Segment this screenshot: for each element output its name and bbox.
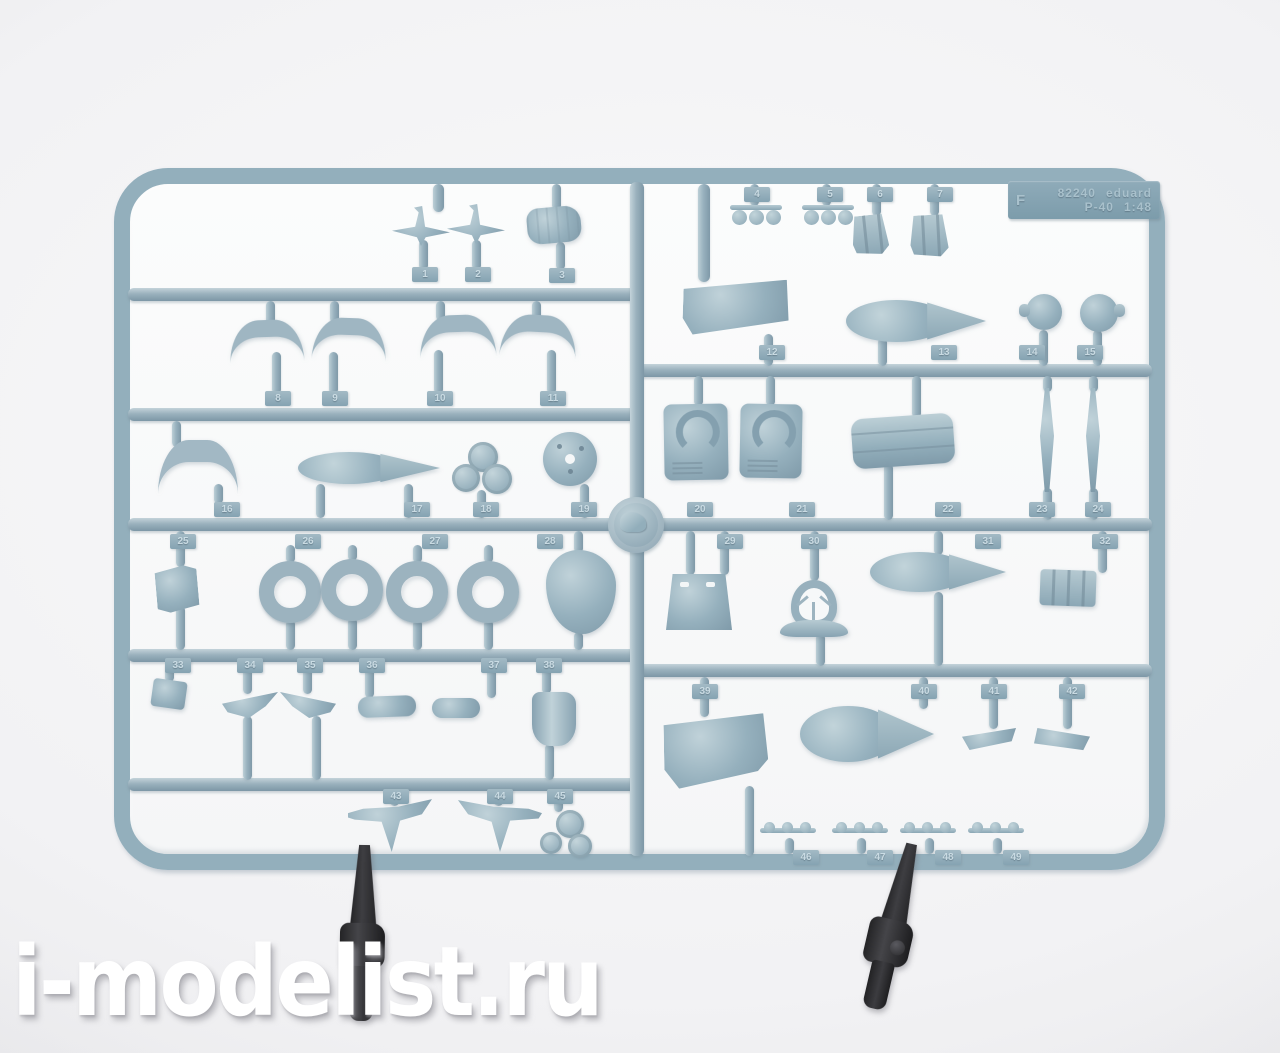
sprue-runner-stem — [413, 620, 422, 650]
sprue-letter: F — [1016, 192, 1025, 209]
sprue-part-45 — [540, 810, 596, 862]
part-number-tag-13: 13 — [931, 345, 957, 360]
part-number-tag-21: 21 — [789, 502, 815, 517]
part-number-tag-18: 18 — [473, 502, 499, 517]
part-number-tag-1: 1 — [412, 267, 438, 282]
part-knob — [732, 210, 747, 225]
part-number-tag-28: 28 — [537, 534, 563, 549]
plate-line-1: 82240eduard — [1031, 186, 1152, 200]
part-number-tag-27: 27 — [422, 534, 448, 549]
sprue-part-15 — [1080, 294, 1118, 332]
sprue-runner-stem — [286, 620, 295, 650]
part-number-tag-17: 17 — [404, 502, 430, 517]
part-number-tag-31: 31 — [975, 534, 1001, 549]
part-number-tag-20: 20 — [687, 502, 713, 517]
sprue-runner-stem — [934, 592, 943, 666]
part-knob — [782, 822, 793, 833]
part-number-tag-48: 48 — [935, 850, 961, 865]
part-slot — [706, 582, 715, 587]
sprue-part-5 — [802, 203, 854, 225]
plate-line-2: P-401:48 — [1031, 200, 1152, 214]
part-knob — [972, 822, 983, 833]
sprue-runner-stem — [694, 376, 703, 406]
sprue-rail-right-1 — [638, 364, 1152, 377]
sprue-part-14 — [1026, 294, 1062, 330]
part-number-tag-15: 15 — [1077, 345, 1103, 360]
sprue-part-26-tire — [259, 561, 321, 623]
small-disc — [568, 834, 592, 858]
part-knob — [990, 822, 1001, 833]
spoke — [812, 602, 815, 620]
sprue-part-32 — [1039, 569, 1096, 607]
part-knob — [872, 822, 883, 833]
center-hole — [565, 454, 575, 464]
sprue-info-plate: F 82240eduard P-401:48 — [1008, 181, 1160, 219]
sprue-part-20-bulkhead — [663, 403, 728, 480]
clip-tail — [862, 959, 895, 1011]
sprue-runner-stem — [348, 618, 357, 650]
sprue-part-31-drop-tank — [870, 552, 1006, 592]
sprue-part-37 — [432, 698, 480, 718]
aircraft-name: P-40 — [1085, 200, 1114, 214]
sprue-part-3 — [526, 205, 583, 246]
part-number-tag-33: 33 — [165, 658, 191, 673]
sprue-runner-stem — [878, 338, 887, 366]
part-number-tag-4: 4 — [744, 187, 770, 202]
part-number-tag-46: 46 — [793, 850, 819, 865]
sprue-runner-stem — [745, 786, 754, 856]
part-number-tag-37: 37 — [481, 658, 507, 673]
watermark-text: i-modelist.ru — [12, 926, 601, 1038]
part-number-tag-10: 10 — [427, 391, 453, 406]
sprue-rail-left-1 — [128, 288, 642, 301]
part-number-tag-43: 43 — [383, 789, 409, 804]
sprue-part-38 — [532, 692, 576, 746]
part-slot — [680, 582, 689, 587]
brand-name: eduard — [1106, 186, 1152, 200]
sprue-part-49 — [968, 822, 1024, 838]
sprue-runner-stem — [545, 744, 554, 780]
pin-hole — [557, 444, 562, 449]
part-knob — [749, 210, 764, 225]
part-number-tag-30: 30 — [801, 534, 827, 549]
part-knob — [922, 822, 933, 833]
part-number-tag-11: 11 — [540, 391, 566, 406]
part-knob — [764, 822, 775, 833]
sprue-part-30-cowl-front — [786, 580, 842, 638]
part-number-tag-12: 12 — [759, 345, 785, 360]
sprue-runner-stem — [816, 634, 825, 666]
plate-text: 82240eduard P-401:48 — [1031, 186, 1152, 214]
part-number-tag-5: 5 — [817, 187, 843, 202]
part-knob — [821, 210, 836, 225]
wheel-disc — [482, 464, 512, 494]
part-number-tag-34: 34 — [237, 658, 263, 673]
sprue-part-48 — [900, 822, 956, 838]
pin-hole — [568, 469, 573, 474]
sprue-runner-stem — [316, 484, 325, 518]
part-number-tag-19: 19 — [571, 502, 597, 517]
part-number-tag-42: 42 — [1059, 684, 1085, 699]
sprue-part-33 — [150, 678, 188, 710]
part-number-tag-9: 9 — [322, 391, 348, 406]
part-knob — [838, 210, 853, 225]
sprue-runner-stem — [766, 376, 775, 406]
clip-head — [861, 915, 915, 970]
part-knob — [940, 822, 951, 833]
sprue-runner-stem — [912, 376, 921, 418]
part-number-tag-45: 45 — [547, 789, 573, 804]
part-number-tag-2: 2 — [465, 267, 491, 282]
part-knob — [836, 822, 847, 833]
part-number-tag-40: 40 — [911, 684, 937, 699]
sprue-part-18 — [452, 442, 514, 496]
part-number-tag-35: 35 — [297, 658, 323, 673]
part-number-tag-38: 38 — [536, 658, 562, 673]
part-number-tag-22: 22 — [935, 502, 961, 517]
part-number-tag-23: 23 — [1029, 502, 1055, 517]
sprue-runner-stem — [472, 240, 481, 270]
part-number-tag-24: 24 — [1085, 502, 1111, 517]
sprue-rail-left-2 — [128, 408, 642, 421]
sprue-part-46 — [760, 822, 816, 838]
part-number-tag-41: 41 — [981, 684, 1007, 699]
part-knob — [904, 822, 915, 833]
sprue-part-29 — [666, 574, 732, 630]
part-number-tag-16: 16 — [214, 502, 240, 517]
clip-jaw — [348, 845, 379, 931]
sprue-runner-stem — [484, 620, 493, 650]
sprue-runner-stem — [686, 531, 695, 575]
sprue-part-21-bulkhead — [739, 403, 802, 478]
sprue-part-19 — [543, 432, 597, 486]
sprue-part-13-fuel-tank — [846, 300, 986, 342]
sprue-part-tire — [386, 561, 448, 623]
sprue-runner-stem — [698, 184, 710, 282]
sprue-photo: 1 2 3 4 5 6 7 8 9 10 11 12 13 14 15 16 1… — [0, 0, 1280, 1053]
sprue-part-tire — [457, 561, 519, 623]
part-knob — [804, 210, 819, 225]
sprue-runner-stem — [993, 838, 1002, 854]
sprue-runner-stem — [433, 184, 444, 212]
sprue-runner-stem — [884, 464, 893, 520]
sprue-runner-stem — [556, 242, 565, 270]
sprue-part-7 — [909, 214, 949, 258]
part-number-tag-3: 3 — [549, 268, 575, 283]
part-knob — [800, 822, 811, 833]
sprue-part-47 — [832, 822, 888, 838]
sprue-part-4 — [730, 203, 782, 225]
scale-text: 1:48 — [1124, 200, 1152, 214]
part-number-tag-44: 44 — [487, 789, 513, 804]
part-number-tag-36: 36 — [359, 658, 385, 673]
part-number-tag-39: 39 — [692, 684, 718, 699]
sprue-part-36 — [358, 695, 417, 718]
sprue-runner-stem — [176, 606, 185, 650]
part-number-tag-6: 6 — [867, 187, 893, 202]
sprue-runner-stem — [857, 838, 866, 854]
sprue-part-27-tire — [321, 559, 383, 621]
sprue-runner-stem — [312, 716, 321, 780]
sprue-part-40-drop-tank — [800, 706, 934, 762]
sprue-runner-stem — [574, 632, 583, 650]
eduard-logo-medallion — [608, 497, 664, 553]
small-disc — [540, 832, 562, 854]
part-number-tag-8: 8 — [265, 391, 291, 406]
part-number-tag-14: 14 — [1019, 345, 1045, 360]
sprue-part-17 — [298, 452, 440, 484]
sprue-part-25 — [154, 564, 200, 613]
part-number-tag-25: 25 — [170, 534, 196, 549]
sprue-rail-right-2 — [638, 664, 1152, 677]
wheel-disc — [452, 464, 480, 492]
part-number-tag-7: 7 — [927, 187, 953, 202]
sprue-rail-left-3 — [128, 649, 642, 662]
kit-number: 82240 — [1058, 186, 1096, 200]
part-number-tag-26: 26 — [295, 534, 321, 549]
part-knob — [854, 822, 865, 833]
cowl-chin — [780, 620, 848, 637]
clip-jaw — [878, 841, 926, 931]
sprue-part-22 — [850, 413, 955, 470]
sprue-runner-stem — [243, 716, 252, 780]
part-number-tag-32: 32 — [1092, 534, 1118, 549]
part-knob — [1008, 822, 1019, 833]
pin-hole — [579, 446, 584, 451]
part-number-tag-49: 49 — [1003, 850, 1029, 865]
part-knob — [766, 210, 781, 225]
part-number-tag-29: 29 — [717, 534, 743, 549]
